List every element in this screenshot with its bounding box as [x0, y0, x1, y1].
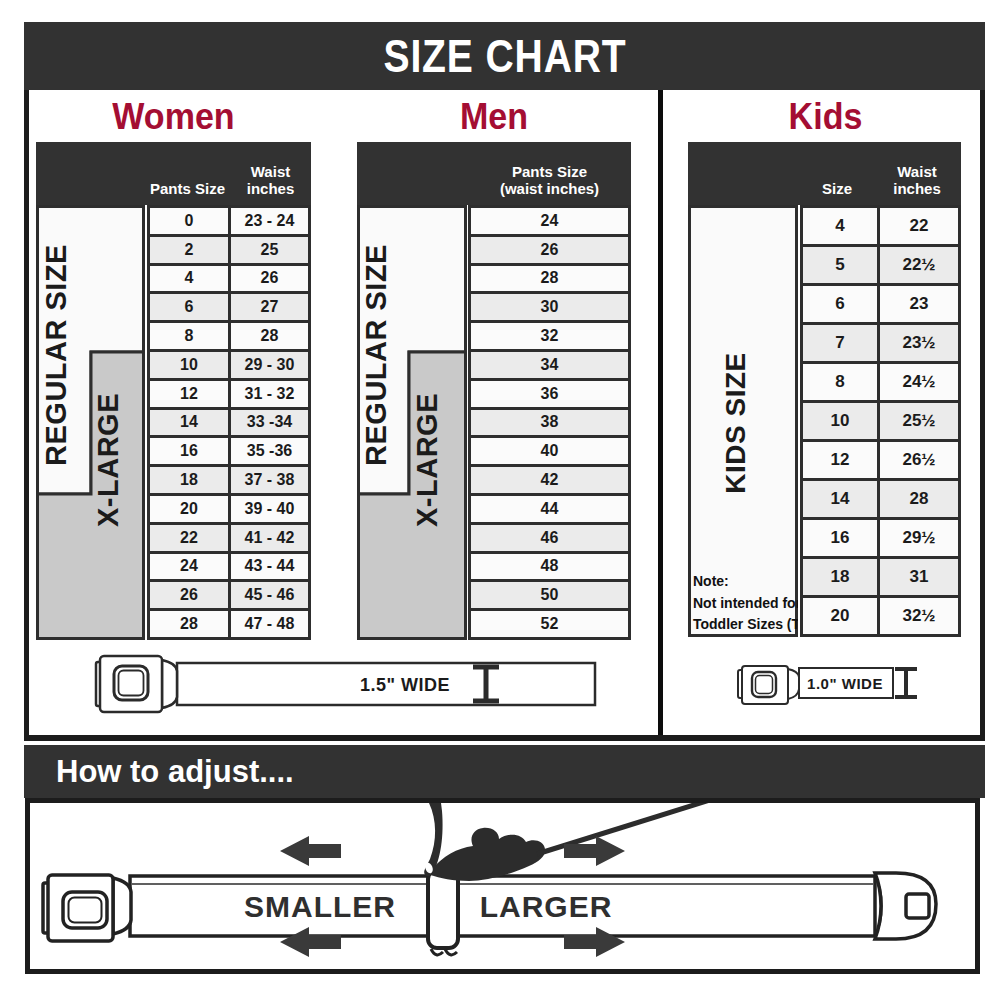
adjust-seatbelt-buckle-icon — [43, 875, 131, 941]
kids-note-line1: Note: — [693, 573, 729, 589]
kids-belt-illustration: 1.0" WIDE — [733, 658, 929, 710]
size-value: 28 — [471, 266, 628, 292]
size-value: 30 — [471, 294, 628, 320]
arrow-left-icon — [280, 836, 341, 866]
size-value: 26 — [471, 237, 628, 263]
men-regular-size-label: REGULAR SIZE — [360, 244, 392, 466]
size-value: 2 — [150, 237, 228, 263]
kids-size-label: KIDS SIZE — [720, 352, 751, 493]
size-value: 18 — [803, 559, 877, 595]
men-table-header: Pants Size (waist inches) — [357, 142, 631, 205]
size-value: 40 — [471, 438, 628, 464]
kids-note-line3: Toddler Sizes (T) — [693, 616, 798, 632]
size-value: 10 — [150, 352, 228, 378]
waist-value: 32½ — [880, 598, 958, 634]
waist-value: 28 — [880, 481, 958, 517]
size-value: 7 — [803, 325, 877, 361]
size-value: 44 — [471, 496, 628, 522]
size-value: 28 — [150, 611, 228, 637]
size-value: 32 — [471, 323, 628, 349]
size-value: 0 — [150, 208, 228, 234]
women-table-header: Pants Size Waist inches — [36, 142, 311, 205]
waist-value: 23 — [880, 286, 958, 322]
larger-label: LARGER — [480, 890, 613, 923]
kids-seatbelt-buckle-icon — [738, 666, 799, 704]
waist-value: 35 -36 — [231, 438, 308, 464]
size-value: 14 — [803, 481, 877, 517]
waist-value: 29 - 30 — [231, 352, 308, 378]
men-xlarge-label: X-LARGE — [411, 393, 443, 527]
waist-value: 28 — [231, 323, 308, 349]
men-size-category-labels: REGULAR SIZE X-LARGE — [357, 205, 467, 640]
men-size-table: 24 26 28 30 32 34 36 38 40 42 44 46 48 5… — [468, 205, 631, 640]
women-size-category-labels: REGULAR SIZE X-LARGE — [36, 205, 145, 640]
women-pants-size-column-header: Pants Size — [147, 180, 228, 198]
frame-border-left — [24, 90, 29, 740]
size-value: 8 — [150, 323, 228, 349]
size-value: 16 — [803, 520, 877, 556]
waist-value: 26 — [231, 266, 308, 292]
size-value: 50 — [471, 582, 628, 608]
size-value: 38 — [471, 410, 628, 436]
men-section-title: Men — [368, 96, 620, 138]
waist-value: 41 - 42 — [231, 525, 308, 551]
belt-tongue-icon — [875, 873, 936, 939]
size-value: 6 — [803, 286, 877, 322]
adjust-illustration: SMALLER LARGER — [30, 803, 975, 969]
how-to-adjust-band: How to adjust.... — [24, 745, 985, 798]
kids-width-marker-icon — [895, 669, 917, 697]
frame-border-right — [980, 90, 985, 740]
waist-value: 23 - 24 — [231, 208, 308, 234]
waist-value: 22 — [880, 208, 958, 244]
size-value: 6 — [150, 294, 228, 320]
kids-section-title: Kids — [699, 96, 952, 138]
waist-value: 25½ — [880, 403, 958, 439]
size-value: 24 — [471, 208, 628, 234]
frame-border-bottom — [24, 735, 985, 741]
size-value: 26 — [150, 582, 228, 608]
section-divider — [658, 90, 663, 735]
kids-size-table: 4 22 5 22½ 6 23 7 23½ 8 24½ 10 25½ 12 26… — [800, 205, 961, 637]
kids-waist-column-header: Waist inches — [878, 163, 956, 198]
how-to-adjust-heading: How to adjust.... — [56, 754, 294, 790]
kids-size-category-label: KIDS SIZE Note: Not intended for Toddler… — [688, 205, 798, 637]
waist-value: 25 — [231, 237, 308, 263]
page-title: SIZE CHART — [383, 29, 626, 83]
waist-value: 27 — [231, 294, 308, 320]
women-xlarge-label: X-LARGE — [92, 393, 124, 527]
waist-value: 39 - 40 — [231, 496, 308, 522]
waist-value: 22½ — [880, 247, 958, 283]
kids-table-header: Size Waist inches — [688, 142, 961, 205]
women-regular-size-label: REGULAR SIZE — [40, 244, 72, 466]
waist-value: 43 - 44 — [231, 554, 308, 580]
size-value: 24 — [150, 554, 228, 580]
kids-size-column-header: Size — [800, 180, 874, 198]
waist-value: 24½ — [880, 364, 958, 400]
size-value: 16 — [150, 438, 228, 464]
waist-value: 29½ — [880, 520, 958, 556]
size-value: 42 — [471, 467, 628, 493]
waist-value: 26½ — [880, 442, 958, 478]
size-value: 18 — [150, 467, 228, 493]
adult-belt-width-label: 1.5" WIDE — [360, 675, 450, 695]
size-value: 20 — [150, 496, 228, 522]
size-value: 34 — [471, 352, 628, 378]
size-value: 46 — [471, 525, 628, 551]
kids-note-line2: Not intended for — [693, 595, 798, 611]
waist-value: 47 - 48 — [231, 611, 308, 637]
women-section-title: Women — [47, 96, 300, 138]
size-value: 48 — [471, 554, 628, 580]
size-value: 14 — [150, 410, 228, 436]
smaller-label: SMALLER — [244, 890, 396, 923]
kids-belt-width-label: 1.0" WIDE — [807, 675, 883, 692]
waist-value: 33 -34 — [231, 410, 308, 436]
size-value: 22 — [150, 525, 228, 551]
size-value: 4 — [803, 208, 877, 244]
size-value: 12 — [803, 442, 877, 478]
size-value: 20 — [803, 598, 877, 634]
size-chart-infographic: SIZE CHART Women Men Kids Pants Size Wai… — [0, 0, 1000, 1000]
size-value: 10 — [803, 403, 877, 439]
waist-value: 37 - 38 — [231, 467, 308, 493]
adult-seatbelt-buckle-icon — [96, 656, 177, 712]
adult-belt-illustration: 1.5" WIDE — [90, 650, 605, 718]
size-value: 52 — [471, 611, 628, 637]
belt-adjuster — [428, 870, 458, 955]
size-value: 36 — [471, 381, 628, 407]
size-value: 5 — [803, 247, 877, 283]
size-value: 4 — [150, 266, 228, 292]
women-waist-column-header: Waist inches — [230, 163, 311, 198]
hand-icon — [424, 803, 713, 881]
men-pants-size-column-header: Pants Size (waist inches) — [468, 163, 631, 198]
adjust-illustration-panel: SMALLER LARGER — [25, 798, 980, 974]
size-value: 8 — [803, 364, 877, 400]
title-bar: SIZE CHART — [24, 22, 985, 90]
waist-value: 23½ — [880, 325, 958, 361]
waist-value: 31 - 32 — [231, 381, 308, 407]
size-value: 12 — [150, 381, 228, 407]
waist-value: 45 - 46 — [231, 582, 308, 608]
women-size-table: 0 23 - 24 2 25 4 26 6 27 8 28 10 29 - 30… — [147, 205, 311, 640]
waist-value: 31 — [880, 559, 958, 595]
